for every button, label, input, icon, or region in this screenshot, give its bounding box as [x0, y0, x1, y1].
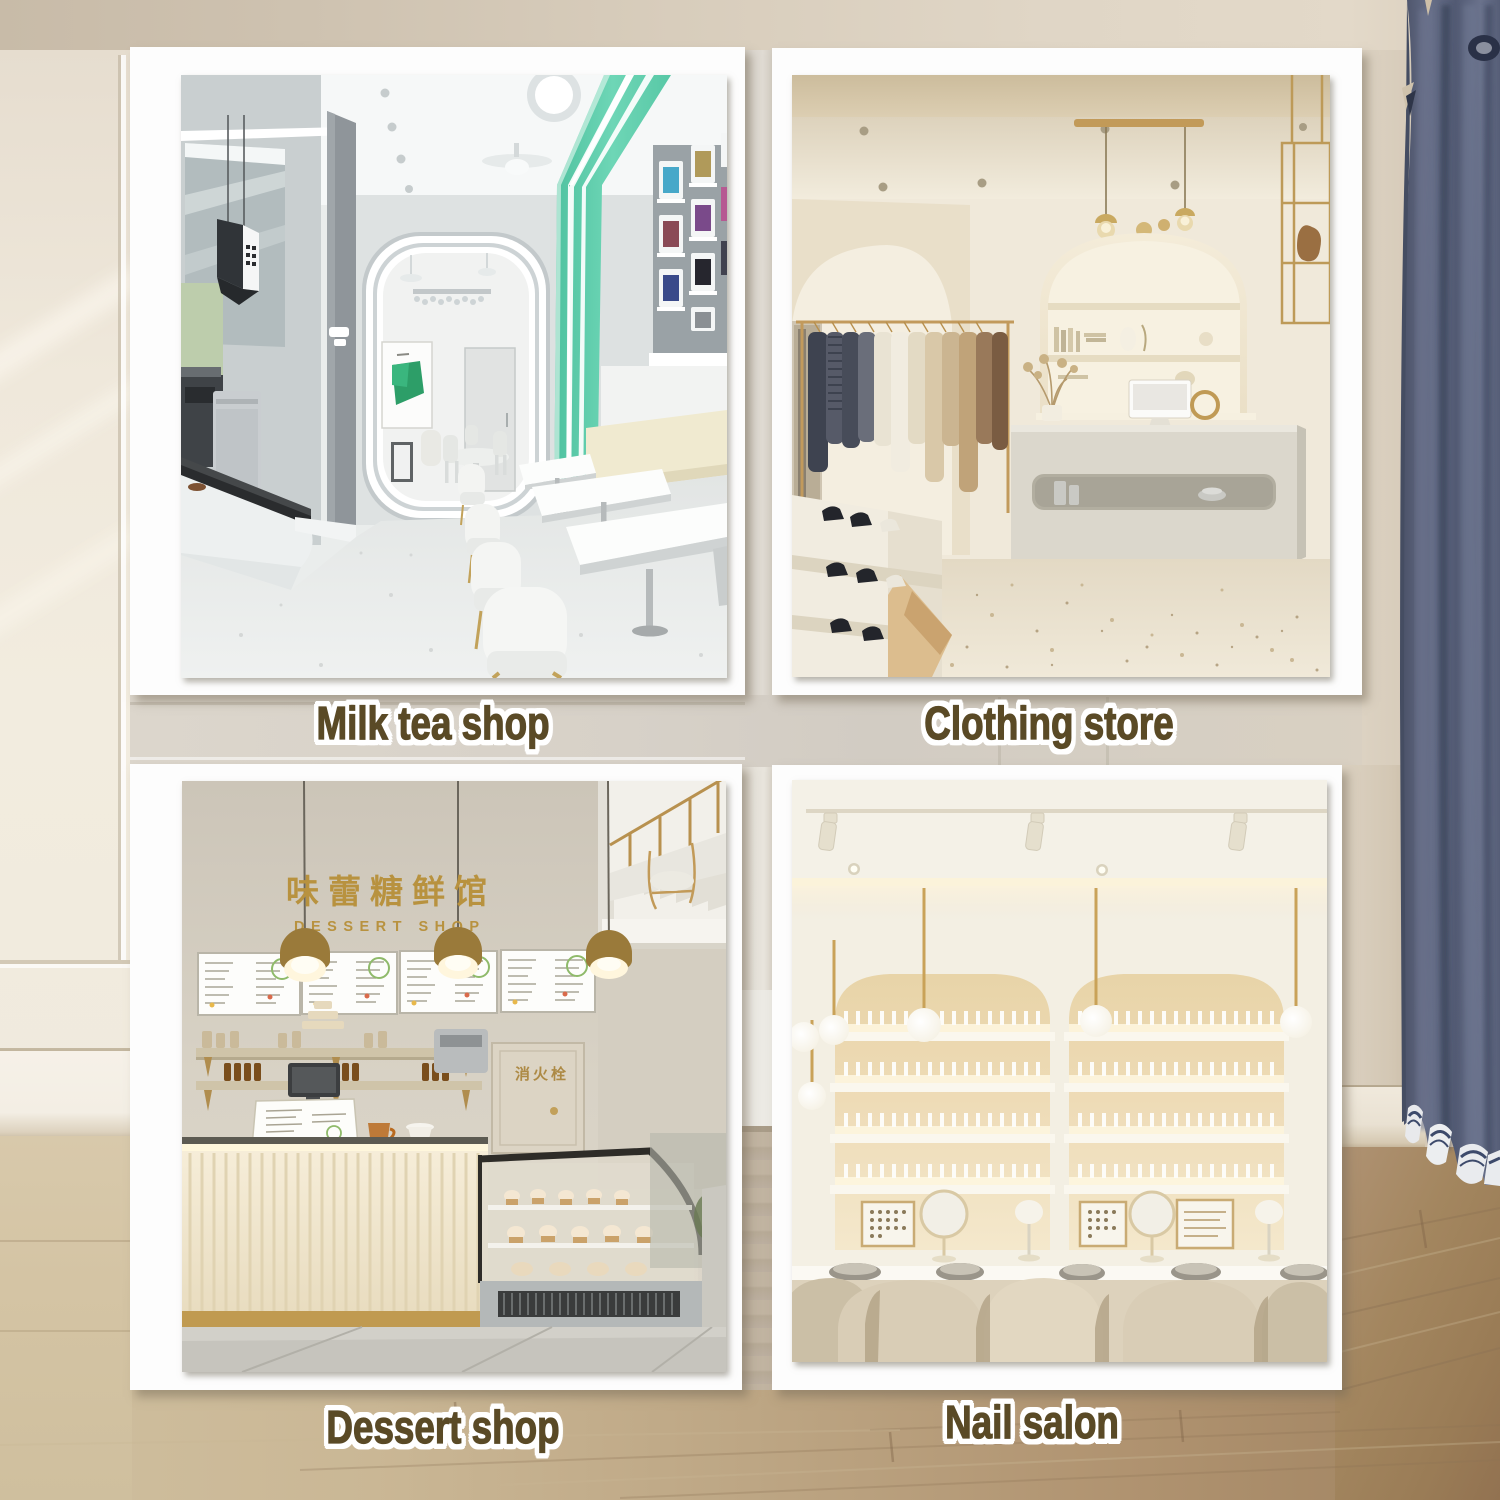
- svg-text:消火栓: 消火栓: [515, 1065, 569, 1083]
- svg-text:味蕾糖鲜馆: 味蕾糖鲜馆: [286, 873, 496, 910]
